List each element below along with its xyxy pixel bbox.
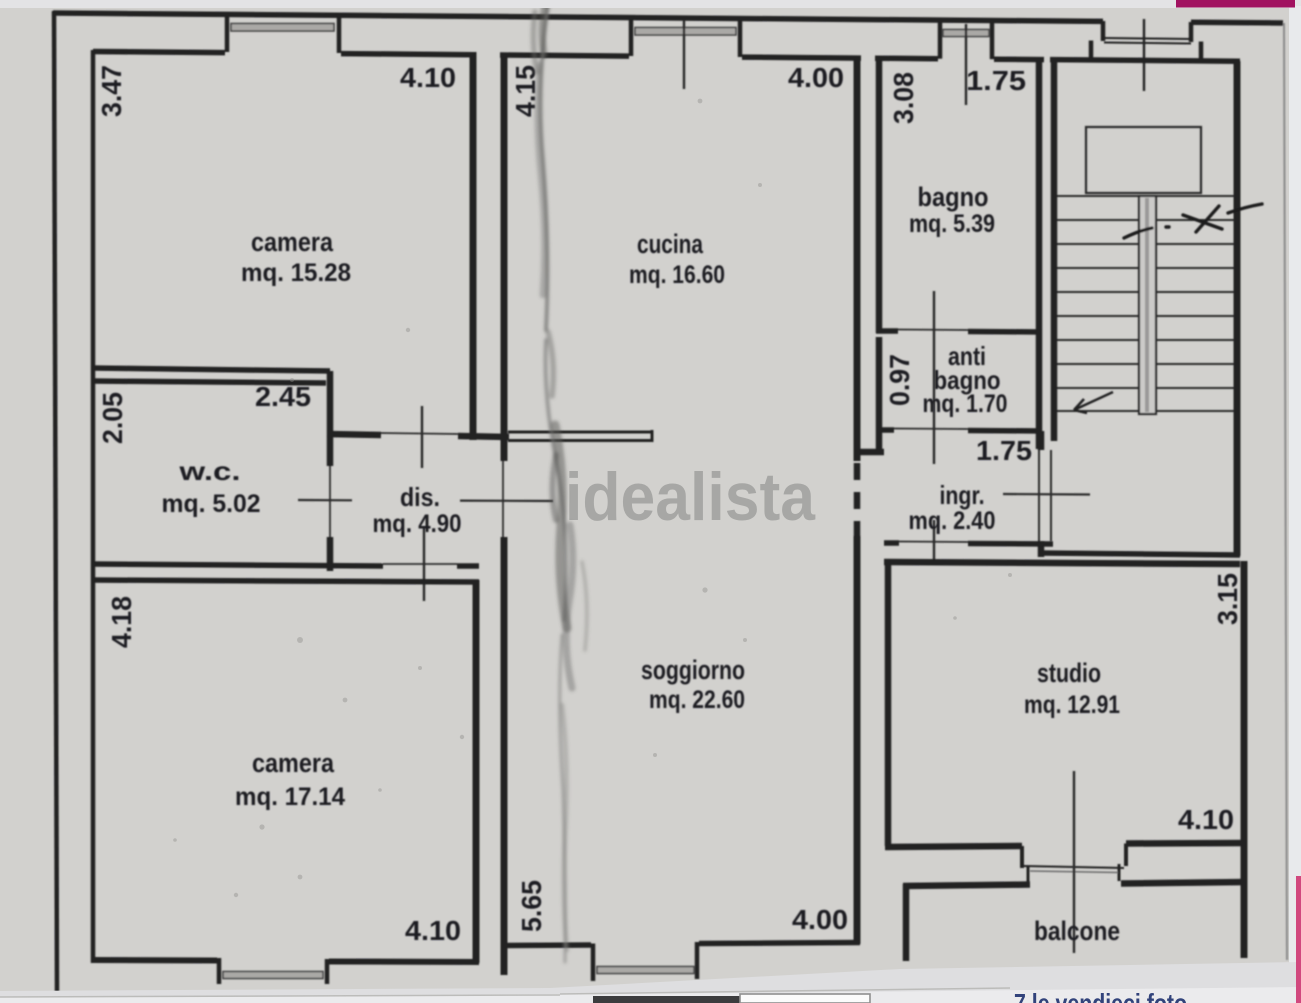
svg-text:4.18: 4.18: [106, 596, 137, 648]
svg-text:mq. 1.70: mq. 1.70: [923, 390, 1008, 418]
svg-text:5.65: 5.65: [516, 880, 547, 932]
svg-text:2.45: 2.45: [255, 381, 311, 412]
svg-text:mq. 15.28: mq. 15.28: [241, 259, 351, 287]
svg-text:dis.: dis.: [400, 482, 440, 512]
svg-text:3.47: 3.47: [96, 65, 127, 117]
svg-text:cucina: cucina: [637, 229, 704, 259]
svg-text:idealista: idealista: [565, 459, 816, 535]
svg-text:1.75: 1.75: [976, 435, 1032, 466]
svg-text:mq. 12.91: mq. 12.91: [1024, 691, 1120, 719]
svg-text:mq. 5.39: mq. 5.39: [909, 210, 995, 238]
svg-text:3.08: 3.08: [888, 72, 919, 124]
svg-text:4.10: 4.10: [405, 915, 461, 946]
svg-text:studio: studio: [1037, 658, 1101, 688]
svg-text:balcone: balcone: [1034, 916, 1120, 946]
svg-text:4.10: 4.10: [400, 62, 456, 93]
svg-text:7 le vendieci foto: 7 le vendieci foto: [1014, 988, 1187, 1003]
svg-text:mq. 2.40: mq. 2.40: [909, 507, 996, 535]
svg-text:soggiorno: soggiorno: [641, 655, 745, 685]
svg-text:0.97: 0.97: [884, 354, 915, 406]
svg-text:mq. 17.14: mq. 17.14: [235, 783, 345, 811]
svg-text:bagno: bagno: [918, 182, 989, 212]
svg-text:4.00: 4.00: [792, 904, 848, 935]
svg-text:mq. 4.90: mq. 4.90: [373, 510, 462, 538]
svg-text:3.15: 3.15: [1212, 573, 1243, 625]
svg-text:camera: camera: [252, 748, 335, 778]
svg-text:w.c.: w.c.: [178, 456, 240, 486]
svg-text:ingr.: ingr.: [940, 480, 985, 510]
svg-text:1.75: 1.75: [966, 65, 1026, 96]
svg-text:mq. 5.02: mq. 5.02: [162, 490, 261, 518]
svg-text:4.00: 4.00: [788, 62, 844, 93]
svg-text:mq. 16.60: mq. 16.60: [629, 261, 725, 289]
svg-text:mq. 22.60: mq. 22.60: [649, 686, 745, 714]
svg-text:4.10: 4.10: [1178, 804, 1234, 835]
svg-text:2.05: 2.05: [97, 392, 128, 444]
svg-text:camera: camera: [251, 227, 334, 257]
